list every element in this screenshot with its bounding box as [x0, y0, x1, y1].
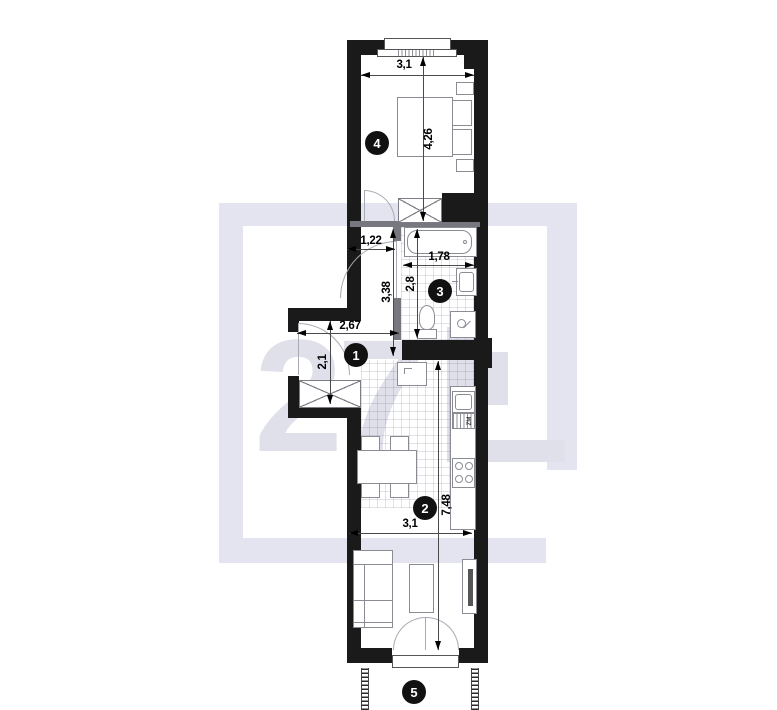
sofa-seat-line-2: [353, 622, 393, 623]
kitchen-sink-basin: [455, 394, 472, 410]
balcony-railing-right: [471, 668, 479, 710]
balcony-threshold: [392, 655, 459, 668]
dim-label-hall-height: 3,38: [381, 281, 393, 302]
arrow-niche-height-bottom: [327, 395, 333, 404]
arrow-living-height-top: [435, 361, 441, 370]
dim-line-living-width: [349, 533, 472, 534]
dim-line-top-width: [361, 75, 474, 76]
arrow-corridor-width-left: [347, 246, 356, 252]
burner-4: [465, 475, 473, 483]
nightstand-bottom: [456, 159, 474, 172]
chair-top-left: [361, 436, 380, 451]
dim-label-niche-height: 2,1: [317, 354, 329, 369]
room-badge-2: 2: [413, 496, 437, 520]
wall-hall-kitchen: [402, 340, 476, 360]
bed-pillow-top: [452, 100, 472, 126]
sofa-seat-line-1: [353, 600, 393, 601]
dining-table: [357, 450, 417, 484]
watermark-frame-right: [547, 203, 577, 470]
dim-label-corridor-width: 1,22: [360, 235, 381, 247]
dim-label-top-width: 3,1: [396, 59, 411, 71]
sofa-armrest-line: [353, 564, 393, 565]
washbasin-tap: [452, 281, 458, 282]
bathtub-drain: [463, 240, 467, 244]
window-radiator-hatch: [398, 50, 436, 56]
dim-label-bath-width: 1,78: [428, 251, 449, 263]
arrow-niche-height-top: [327, 321, 333, 330]
arrow-bath-height-top: [414, 229, 420, 238]
arrow-corridor-width-right: [386, 246, 395, 252]
washbasin-inner: [459, 272, 474, 292]
coffee-table: [409, 564, 434, 613]
dim-label-bedroom-height: 4,26: [423, 128, 435, 149]
dim-line-niche-height: [330, 321, 331, 404]
arrow-hall-width-left: [297, 330, 306, 336]
toilet-tank: [417, 329, 437, 339]
arrow-top-width-left: [361, 72, 370, 78]
arrow-bedroom-height-top: [420, 57, 426, 66]
burner-2: [465, 462, 473, 470]
toilet-bowl: [419, 305, 435, 330]
room-badge-3: 3: [428, 279, 452, 303]
floorplan-canvas: 27: [0, 0, 777, 710]
burner-1: [455, 462, 463, 470]
dishwasher-label: ZM: [467, 417, 473, 426]
tv-screen: [468, 569, 473, 606]
room-badge-4: 4: [365, 131, 389, 155]
wall-bottom-left: [347, 648, 392, 663]
nightstand-top: [456, 82, 474, 95]
chair-bottom-right: [390, 483, 409, 498]
dim-label-living-height: 7,48: [441, 494, 453, 515]
wall-niche-left-lower: [288, 376, 299, 406]
fridge-door-mark: [404, 368, 412, 374]
sofa: [353, 550, 393, 628]
dim-line-hall-width: [297, 333, 399, 334]
arrow-bath-width-left: [403, 262, 412, 268]
arrow-hall-height-bottom: [390, 347, 396, 356]
balcony-door-right-arc: [426, 617, 459, 650]
dim-label-bath-height: 2,8: [405, 276, 417, 291]
balcony-door-left-arc: [393, 617, 426, 650]
fridge-cabinet: [397, 362, 427, 386]
arrow-living-height-bottom: [435, 641, 441, 650]
wall-shaft: [442, 193, 480, 223]
watermark-frame-left: [219, 203, 243, 561]
wall-bottom-right: [459, 648, 488, 663]
wall-corner-top-right: [464, 55, 488, 69]
arrow-hall-height-top: [390, 229, 396, 238]
dim-label-living-width: 3,1: [402, 518, 417, 530]
chair-top-right: [390, 436, 409, 451]
chair-bottom-left: [361, 483, 380, 498]
arrow-bath-height-bottom: [414, 329, 420, 338]
arrow-living-width-right: [463, 530, 472, 536]
burner-3: [455, 475, 463, 483]
arrow-bedroom-height-bottom: [420, 212, 426, 221]
arrow-top-width-right: [465, 72, 474, 78]
dim-line-bath-width: [403, 265, 474, 266]
arrow-hall-width-right: [390, 330, 399, 336]
balcony-railing-left: [361, 668, 369, 710]
dim-line-bath-height: [417, 229, 418, 338]
dim-line-living-height: [438, 361, 439, 650]
arrow-bath-width-right: [465, 262, 474, 268]
wall-pillar-right: [474, 338, 492, 368]
bedroom-door-arc: [364, 190, 395, 221]
dim-label-hall-width: 2,67: [339, 320, 360, 332]
room-badge-1: 1: [344, 343, 368, 367]
sofa-backrest-line: [364, 564, 365, 628]
arrow-living-width-left: [349, 530, 358, 536]
room-badge-5: 5: [402, 680, 426, 704]
bed-pillow-bottom: [452, 129, 472, 155]
